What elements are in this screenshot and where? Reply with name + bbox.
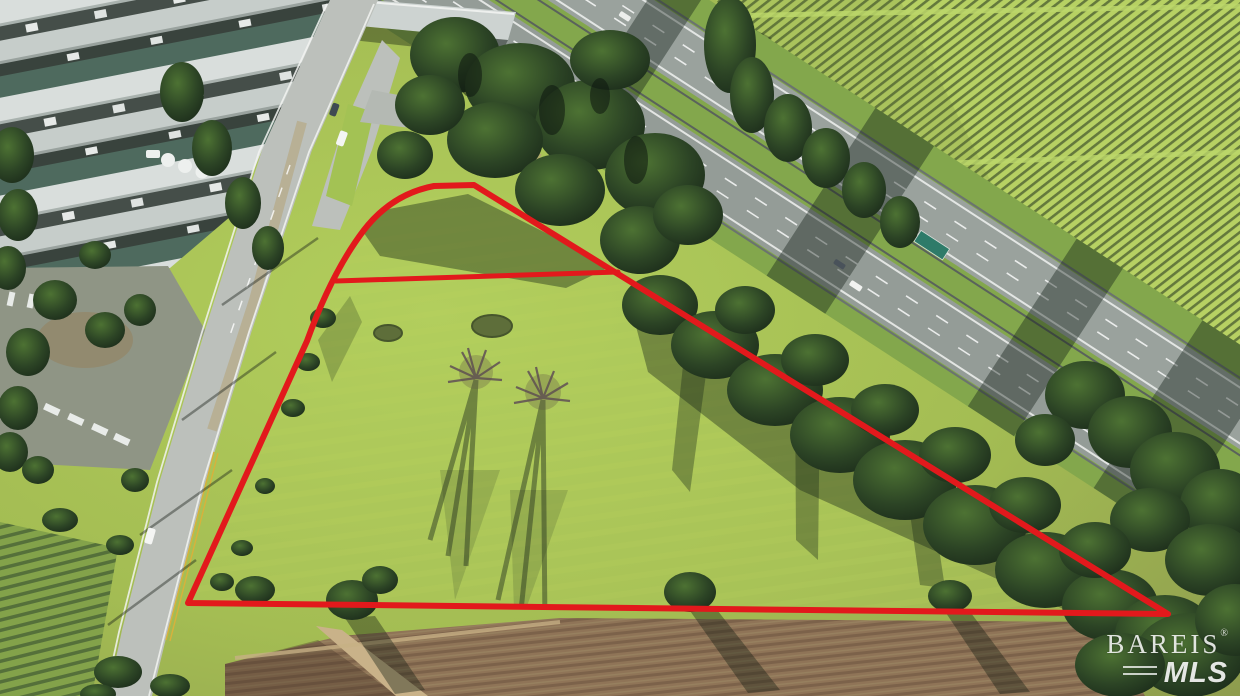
watermark-mls: MLS <box>1106 659 1228 688</box>
watermark: BAREIS® MLS <box>1106 631 1228 688</box>
watermark-rule <box>1123 666 1157 675</box>
brush-patch <box>374 325 402 341</box>
watermark-brand: BAREIS® <box>1106 631 1228 658</box>
aerial-photo: BAREIS® MLS <box>0 0 1240 696</box>
registered-mark: ® <box>1220 628 1228 639</box>
aerial-scene <box>0 0 1240 696</box>
brush-patch <box>472 315 512 337</box>
